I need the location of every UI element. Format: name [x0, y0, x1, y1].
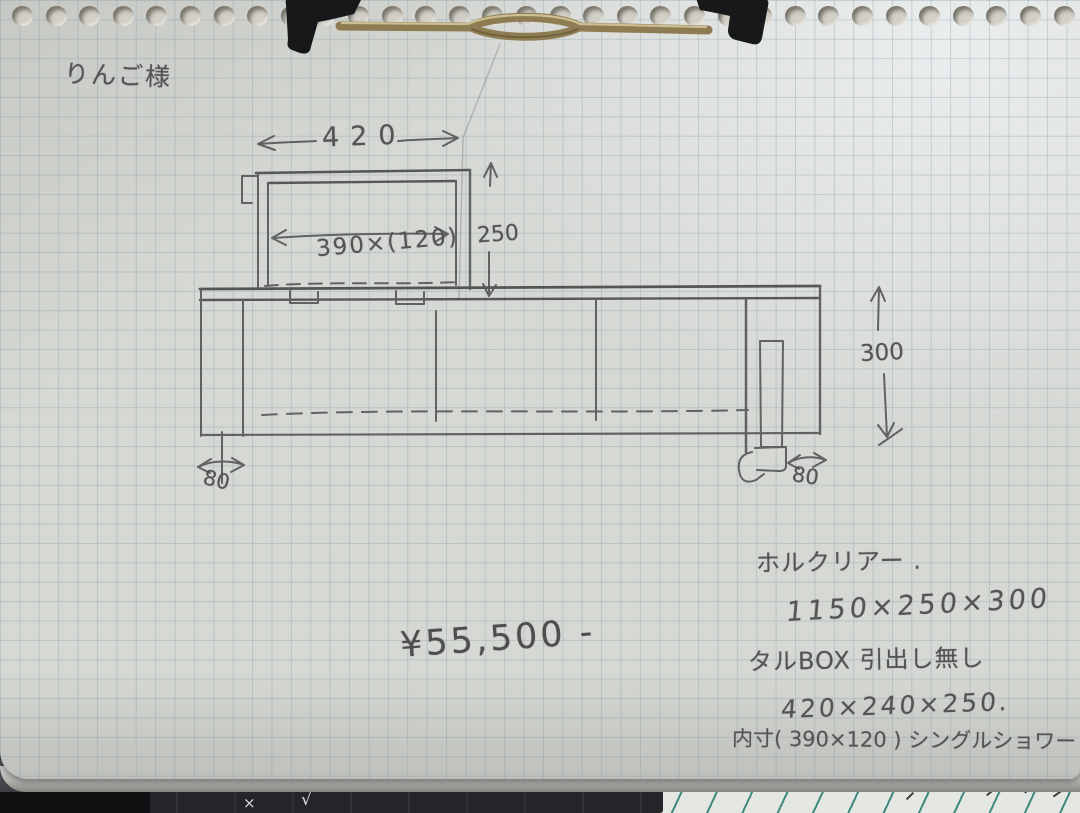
box-dashed-line — [265, 282, 458, 286]
photo-stage: × √ — [0, 0, 1080, 813]
note-line-5: 内寸( 390×120 ) シングルショワー — [732, 727, 1076, 753]
dim-250-label: 250 — [476, 222, 520, 249]
board-dashed-line — [262, 410, 748, 415]
box-left-tab — [242, 176, 258, 203]
clip-corner-right — [696, 0, 768, 44]
note-line-1: ホルクリアー . — [756, 548, 922, 577]
board-notch-right — [396, 291, 424, 304]
board-notch-left — [290, 291, 318, 303]
main-board-outline — [200, 286, 820, 436]
clip-wire — [340, 15, 708, 37]
note-line-3: タルBOX 引出し無し — [748, 645, 985, 676]
dim-420-label: 420 — [322, 121, 408, 154]
clipboard-clip — [0, 0, 1080, 70]
right-leg-detail — [739, 300, 786, 482]
dim-300-label: 300 — [859, 340, 904, 368]
dim-80-right-label: 80 — [790, 463, 820, 490]
